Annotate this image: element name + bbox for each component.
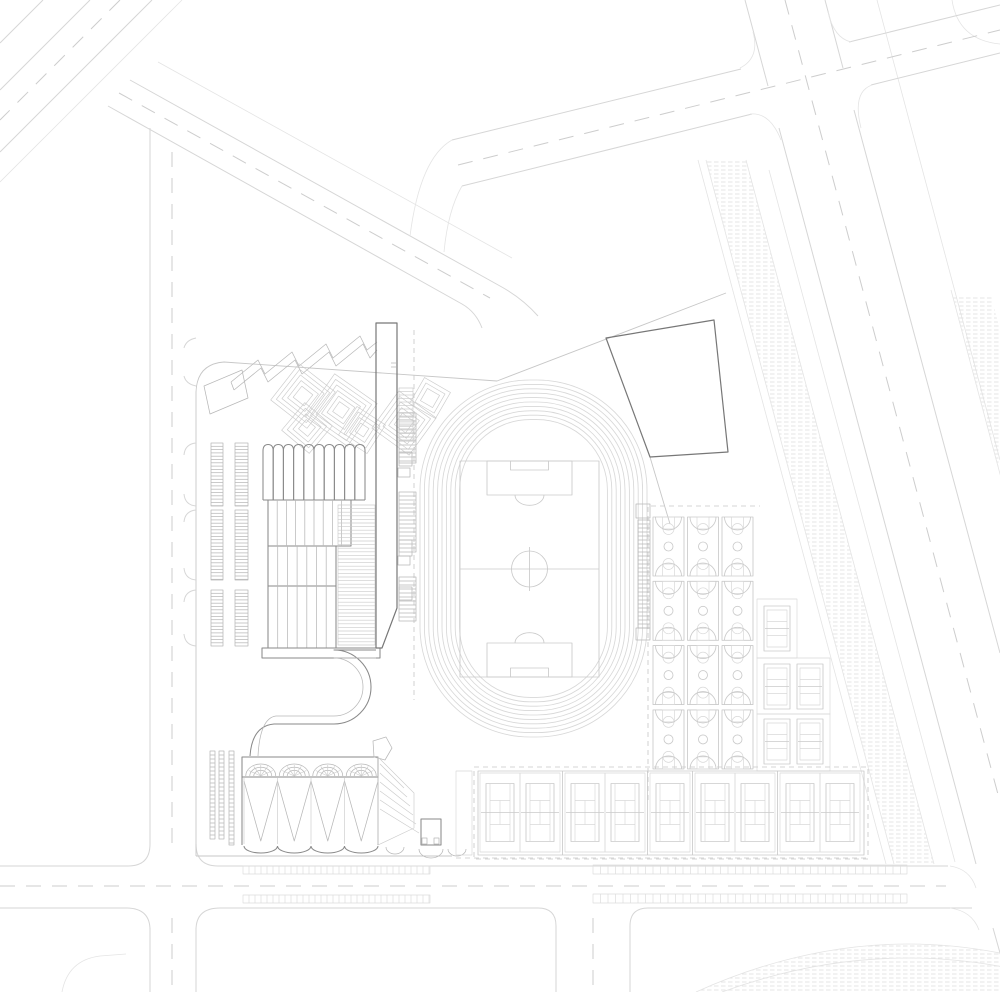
site-plan-canvas xyxy=(0,0,1000,992)
site-plan-svg xyxy=(0,0,1000,992)
